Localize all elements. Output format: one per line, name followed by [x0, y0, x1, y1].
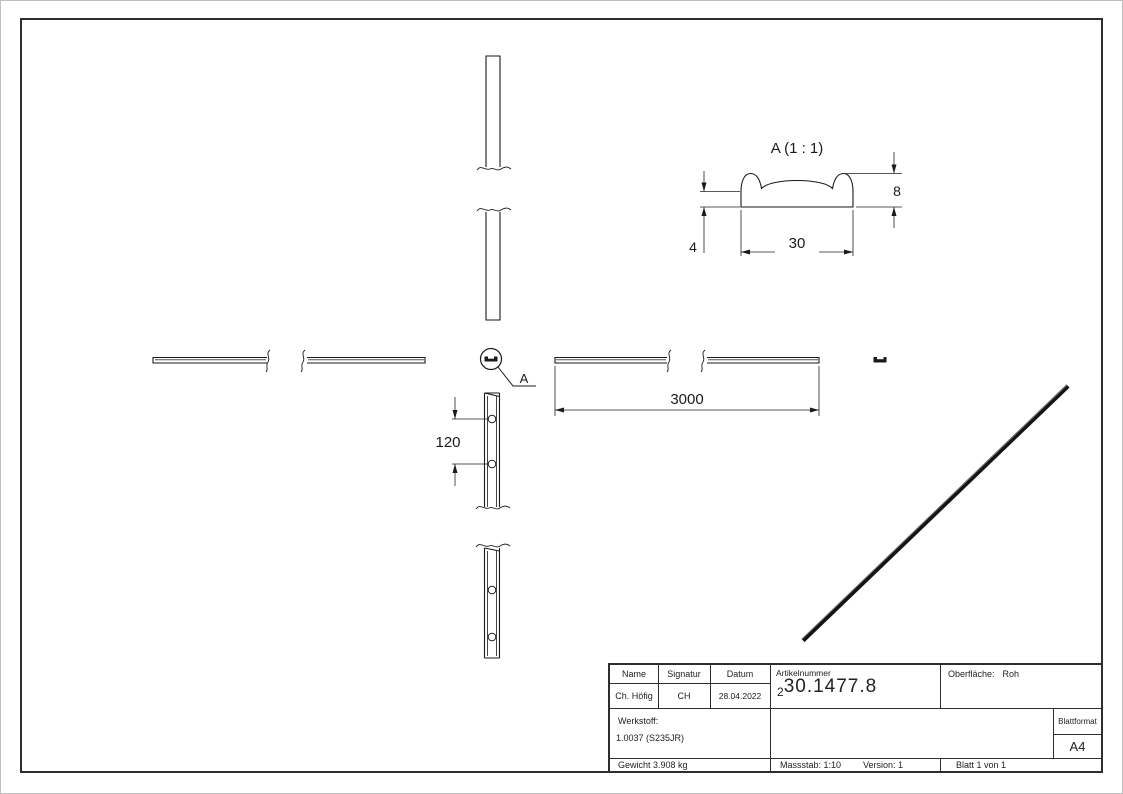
werkstoff-value: 1.0037 (S235JR): [616, 733, 684, 743]
blattformat-label: Blattformat: [1054, 709, 1101, 734]
massstab-value: Massstab: 1:10: [780, 760, 841, 770]
blattformat-value: A4: [1054, 735, 1101, 758]
gewicht-value: Gewicht 3.908 kg: [618, 760, 688, 770]
drawing-sheet: A 3000: [0, 0, 1123, 794]
version-value: Version: 1: [863, 760, 903, 770]
drawing-frame-border: [20, 18, 1103, 773]
name-header: Name: [610, 665, 658, 683]
werkstoff-label: Werkstoff:: [618, 716, 658, 726]
artikelnummer-prefix: 2: [777, 686, 784, 698]
signatur-header: Signatur: [658, 665, 710, 683]
blatt-value: Blatt 1 von 1: [956, 760, 1006, 770]
signatur-value: CH: [658, 684, 710, 708]
datum-value: 28.04.2022: [710, 684, 770, 708]
title-block: Name Signatur Datum Ch. Höfig CH 28.04.2…: [608, 663, 1103, 773]
artikelnummer-value: 2 30.1477.8: [777, 677, 877, 696]
oberflaeche-value: Roh: [1003, 669, 1020, 679]
oberflaeche-cell: Oberfläche: Roh: [948, 669, 1019, 679]
oberflaeche-label: Oberfläche:: [948, 669, 995, 679]
name-value: Ch. Höfig: [610, 684, 658, 708]
datum-header: Datum: [710, 665, 770, 683]
artikelnummer-main: 30.1477.8: [784, 677, 878, 696]
massstab-cell: Massstab: 1:10 Version: 1: [780, 758, 903, 771]
